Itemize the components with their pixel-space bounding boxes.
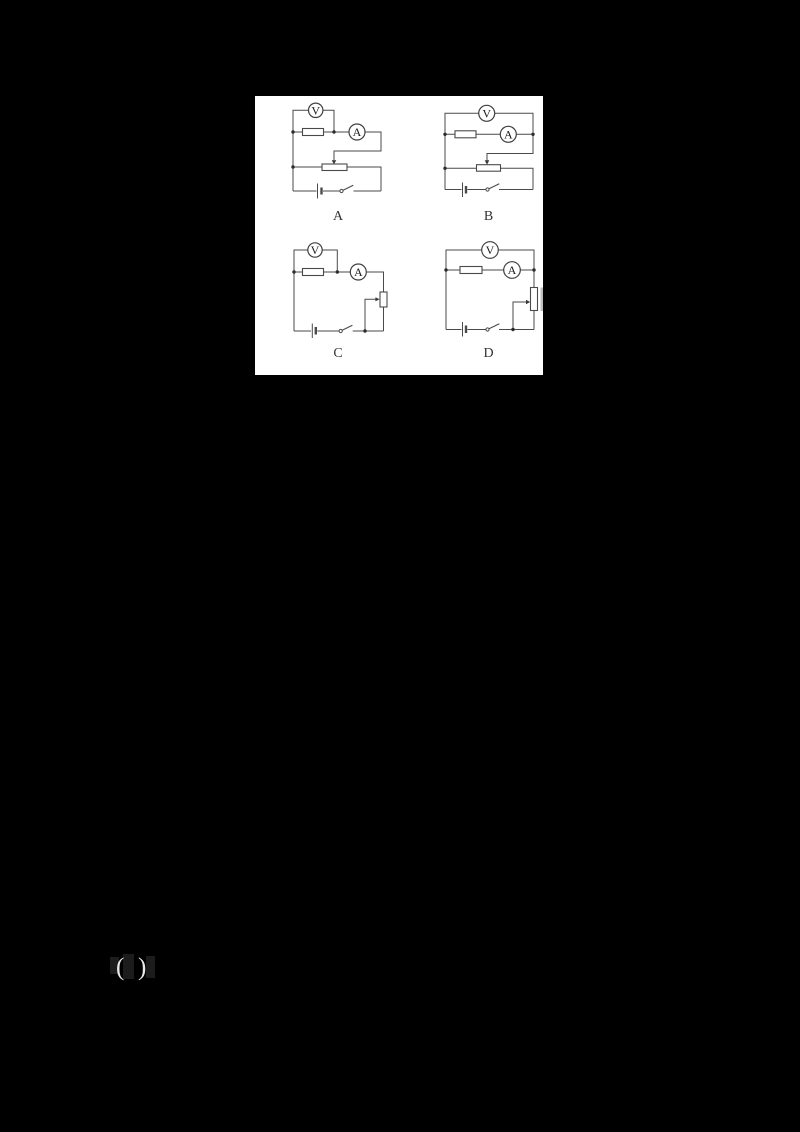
wiper-arrow-icon [485, 160, 490, 165]
answer-blank-close-paren: ) [138, 955, 146, 980]
ammeter-symbol: A [504, 262, 521, 279]
battery-symbol [463, 322, 467, 337]
voltmeter-symbol: V [482, 242, 499, 259]
wires [446, 250, 534, 330]
scan-artifact [541, 288, 544, 312]
junction-dot [532, 268, 535, 271]
rheostat-symbol [322, 160, 347, 170]
voltmeter-symbol: V [308, 243, 322, 257]
resistor-symbol [303, 269, 324, 276]
voltmeter-letter: V [482, 106, 491, 120]
scanned-exam-page: { "page": { "background_color": "#000000… [0, 0, 800, 1132]
voltmeter-letter: V [311, 103, 320, 117]
circuit-diagram-c: V A C [292, 243, 387, 361]
ammeter-symbol: A [500, 126, 516, 142]
circuit-diagram-a: V A A [291, 103, 381, 224]
voltmeter-symbol: V [479, 105, 495, 121]
junction-dot [292, 270, 295, 273]
junction-dot [511, 328, 514, 331]
resistor-symbol [303, 129, 324, 136]
junction-dot [443, 167, 446, 170]
ammeter-letter: A [353, 125, 362, 139]
ammeter-symbol: A [349, 124, 365, 140]
switch-symbol [340, 185, 353, 192]
wiper-arrow-icon [375, 297, 379, 301]
voltmeter-letter: V [311, 243, 320, 257]
circuit-label-a: A [333, 209, 344, 224]
rheostat-symbol [477, 160, 501, 171]
battery-symbol [463, 183, 467, 198]
circuit-diagram-b: V A B [443, 105, 534, 224]
junction-dot [531, 133, 534, 136]
ammeter-letter: A [504, 127, 513, 141]
wires [293, 110, 381, 191]
circuit-diagram-d: V A D [444, 242, 543, 361]
junction-dot [291, 130, 294, 133]
junction-dot [332, 130, 335, 133]
switch-symbol [339, 325, 352, 332]
redaction-artifact [123, 954, 134, 979]
junction-dot [444, 268, 447, 271]
resistor-symbol [460, 267, 482, 274]
circuit-diagrams-svg: V A A [255, 96, 543, 375]
circuit-label-b: B [484, 209, 493, 224]
voltmeter-symbol: V [309, 103, 323, 117]
wires [445, 113, 533, 189]
battery-symbol [312, 324, 316, 339]
voltmeter-letter: V [486, 243, 495, 257]
redaction-artifact [146, 956, 155, 978]
junction-dot [363, 329, 366, 332]
circuit-label-d: D [483, 346, 493, 361]
ammeter-letter: A [354, 265, 363, 279]
wiper-arrow-icon [526, 300, 530, 304]
circuit-figure-panel: V A A [255, 96, 543, 375]
resistor-symbol [455, 131, 476, 138]
answer-blank-open-paren: ( [116, 955, 124, 980]
junction-dot [443, 133, 446, 136]
rheostat-symbol [375, 292, 387, 307]
rheostat-symbol [526, 288, 538, 311]
junction-dot [336, 270, 339, 273]
ammeter-letter: A [508, 263, 517, 277]
switch-symbol [486, 324, 499, 331]
wires [294, 250, 384, 331]
circuit-label-c: C [333, 346, 342, 361]
battery-symbol [318, 184, 322, 199]
junction-dot [291, 165, 294, 168]
ammeter-symbol: A [350, 264, 366, 280]
switch-symbol [486, 184, 499, 191]
